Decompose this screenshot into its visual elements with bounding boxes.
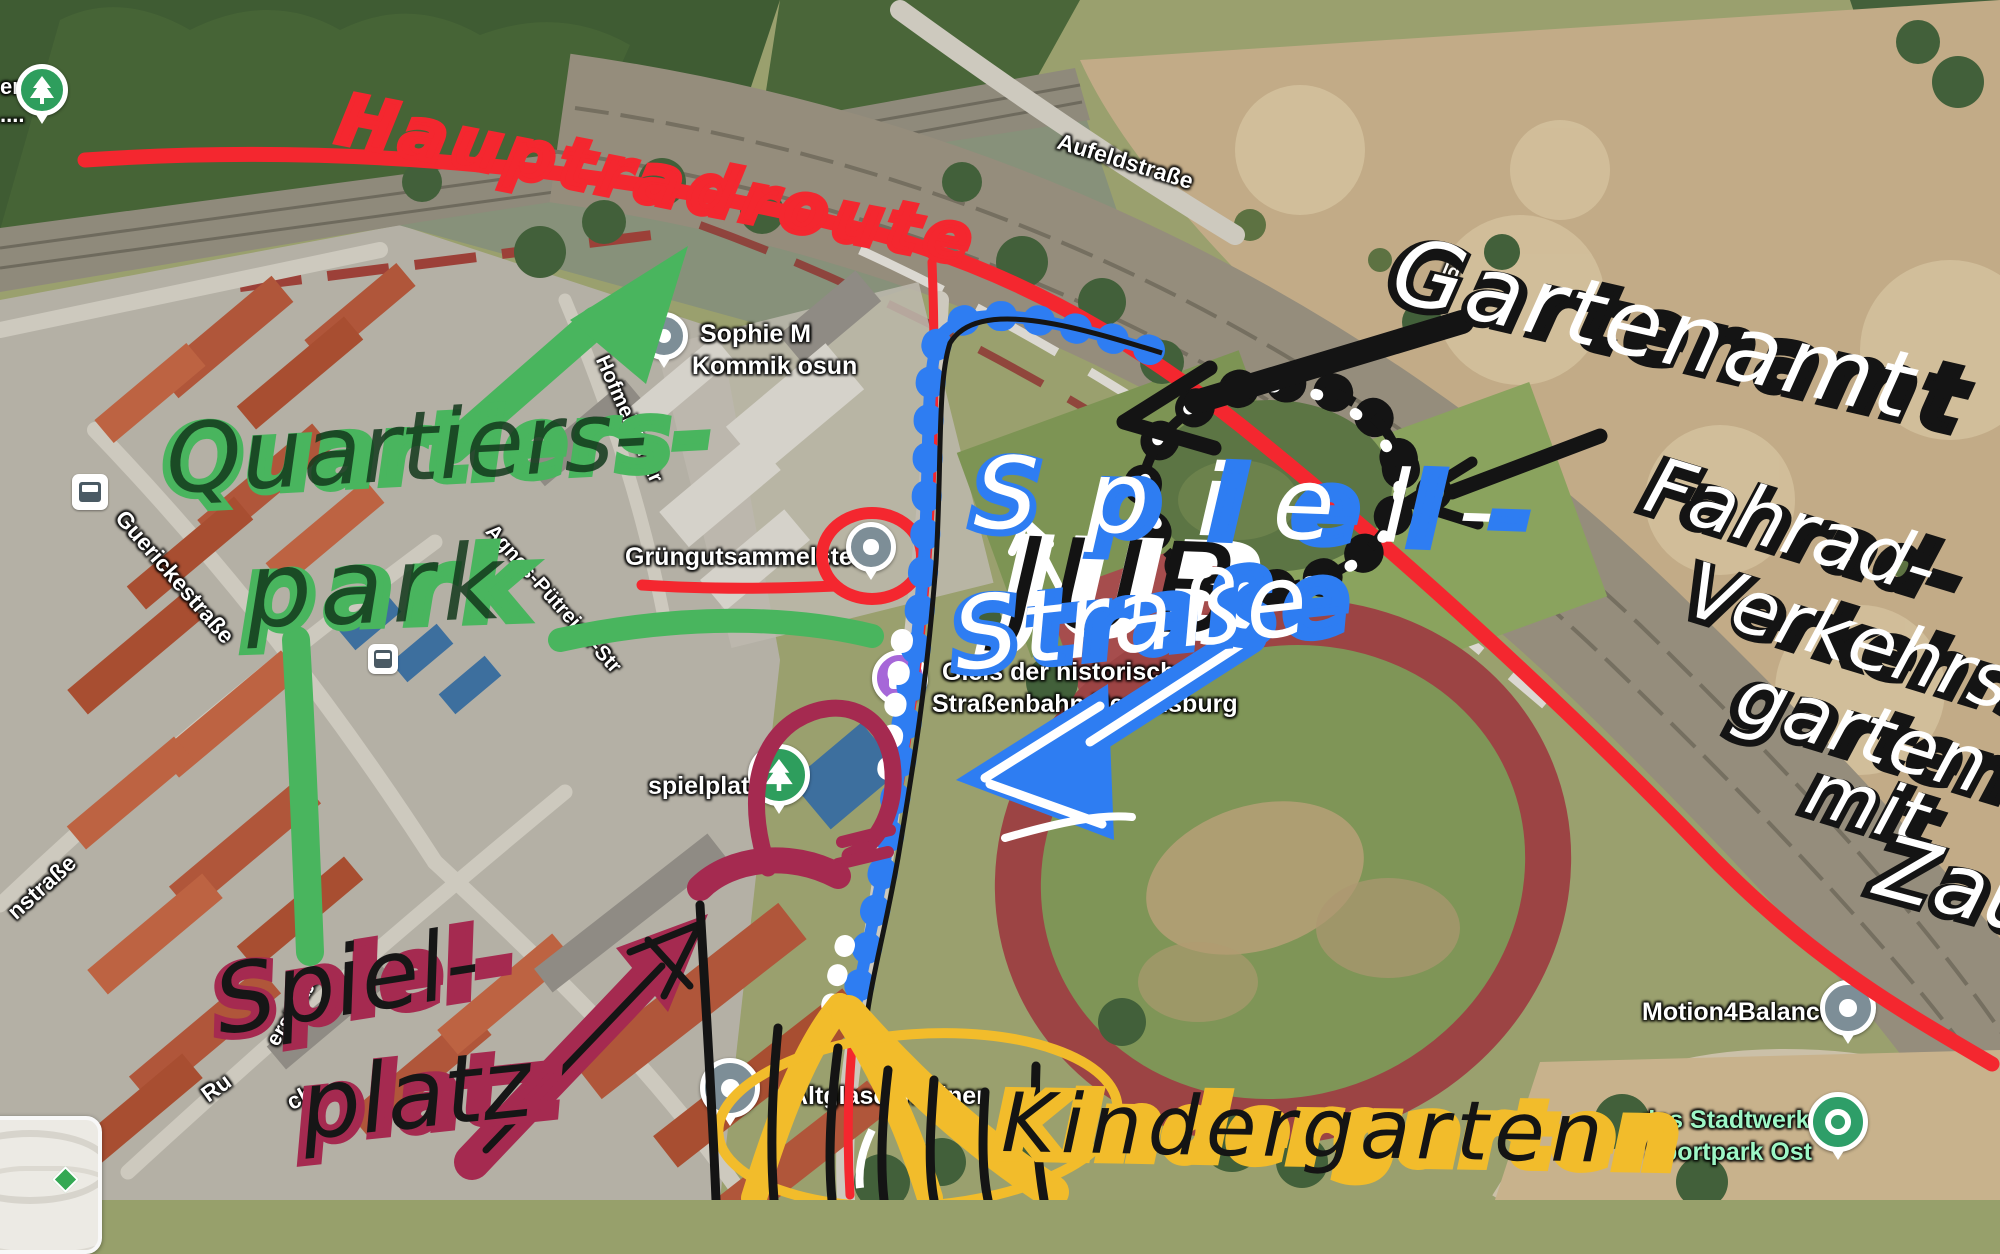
annotation-platz-maroon: platzplatz	[292, 1038, 565, 1155]
annotated-satellite-map: { "map_labels": { "aufeldstrasse": "Aufe…	[0, 0, 2000, 1200]
black-arrow-gartenamt	[1124, 322, 1462, 448]
annotation-quartiers: Quartiers-Quartiers-	[160, 389, 714, 509]
annotation-park: parkpark	[240, 535, 540, 644]
annotation-kindergarten: KindergartenKindergarten	[997, 1088, 1683, 1178]
